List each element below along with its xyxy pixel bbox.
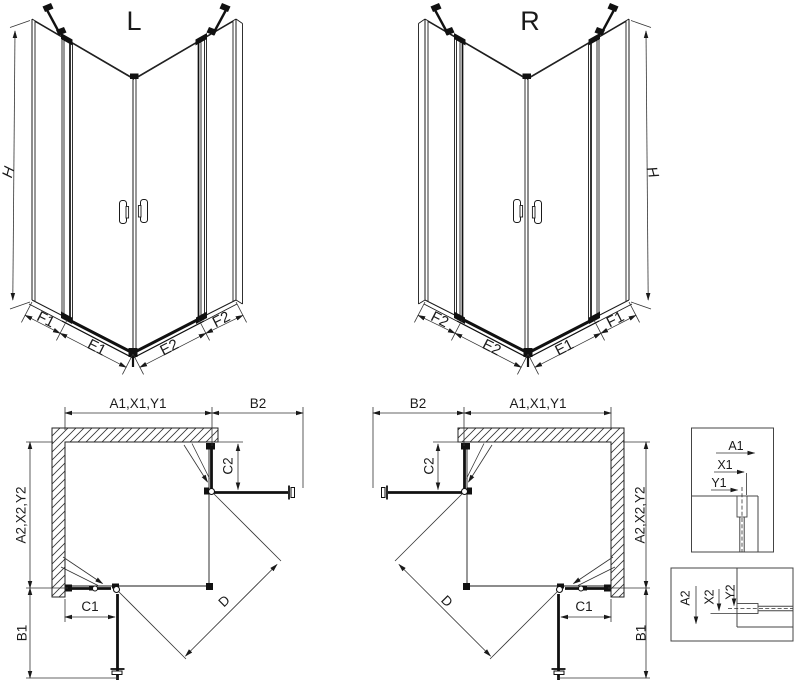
plan-left-d-label: D	[215, 592, 233, 610]
plan-left-width-label: A1,X1,Y1	[109, 396, 166, 411]
drawing-sheet: L H F1 E1 E2 F2 R H F2 E2 E1 F1 A1,X1,Y1…	[0, 0, 800, 688]
iso-left-height-label: H	[0, 165, 18, 180]
plan-left-view	[26, 407, 303, 680]
plan-left-b2-label: B2	[250, 396, 267, 411]
detail-top-y1-label: Y1	[711, 476, 726, 490]
plan-right-wall	[458, 428, 624, 597]
drawing-canvas: L H F1 E1 E2 F2 R H F2 E2 E1 F1 A1,X1,Y1…	[0, 0, 800, 688]
plan-left-c1-label: C1	[81, 599, 98, 614]
plan-left-wall	[52, 428, 218, 597]
iso-left-title: L	[126, 6, 141, 36]
plan-right-view	[373, 407, 650, 680]
plan-right-width-label: A1,X1,Y1	[509, 396, 566, 411]
iso-right-height-label: H	[643, 165, 662, 180]
iso-right-title: R	[520, 6, 540, 36]
plan-right-b2-label: B2	[410, 396, 427, 411]
plan-right-c1-label: C1	[575, 599, 592, 614]
plan-right-b1-label: B1	[634, 625, 649, 642]
plan-left-b1-label: B1	[15, 625, 30, 642]
detail-top-x1-label: X1	[717, 458, 732, 472]
plan-left-height-label: A2,X2,Y2	[14, 486, 29, 543]
labels: L H F1 E1 E2 F2 R H F2 E2 E1 F1 A1,X1,Y1…	[0, 6, 744, 641]
plan-right-d-label: D	[438, 592, 456, 610]
plan-right-height-label: A2,X2,Y2	[633, 486, 648, 543]
plan-left-c2-label: C2	[221, 457, 236, 474]
detail-bottom-y2-label: Y2	[723, 584, 737, 599]
plan-right-c2-label: C2	[422, 457, 437, 474]
detail-bottom-a2-label: A2	[678, 590, 692, 605]
detail-top-a1-label: A1	[728, 439, 743, 453]
detail-bottom-x2-label: X2	[702, 589, 716, 604]
